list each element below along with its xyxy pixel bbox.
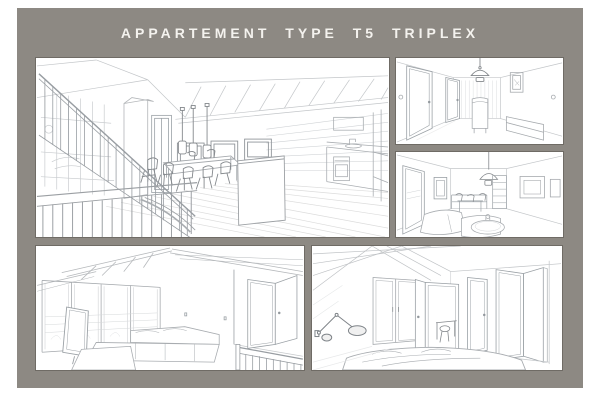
render-entry-hall (395, 57, 564, 145)
living-dining-kitchen-sketch (36, 58, 389, 237)
entry-hall-sketch (396, 58, 563, 144)
page-title: APPARTEMENT TYPE T5 TRIPLEX (17, 8, 583, 57)
render-mezzanine-lounge (35, 245, 305, 371)
bedroom-sketch (312, 246, 562, 370)
presentation-board: APPARTEMENT TYPE T5 TRIPLEX (17, 8, 583, 388)
render-bedroom (311, 245, 563, 371)
living-room-sketch (396, 152, 563, 237)
render-living-room (395, 151, 564, 238)
mezzanine-lounge-sketch (36, 246, 304, 370)
render-living-dining-kitchen (35, 57, 390, 238)
